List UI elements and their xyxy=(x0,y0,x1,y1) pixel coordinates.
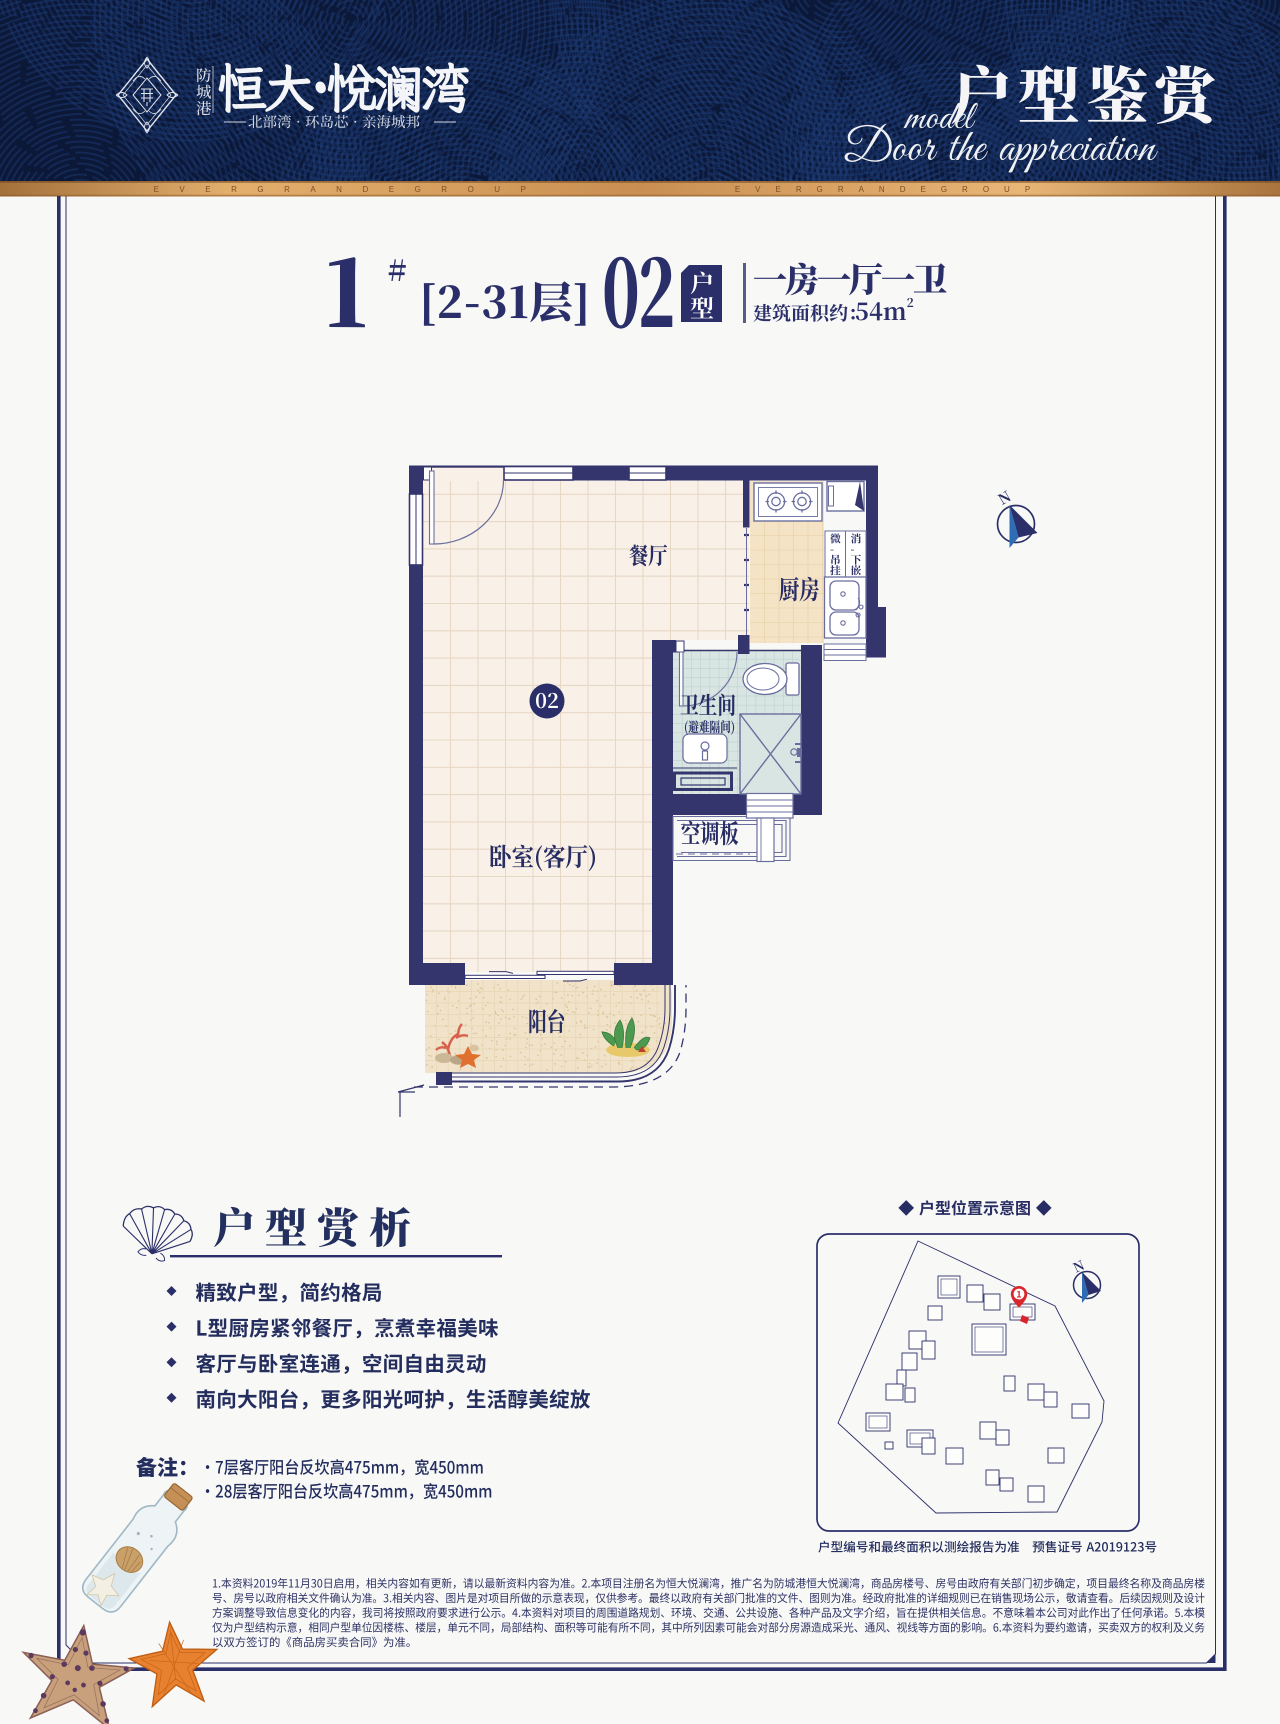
svg-text:EVERGRANDEGROUP: EVERGRANDEGROUP xyxy=(735,185,1045,194)
svg-text:EVERGRANDEGROUP: EVERGRANDEGROUP xyxy=(154,185,547,194)
